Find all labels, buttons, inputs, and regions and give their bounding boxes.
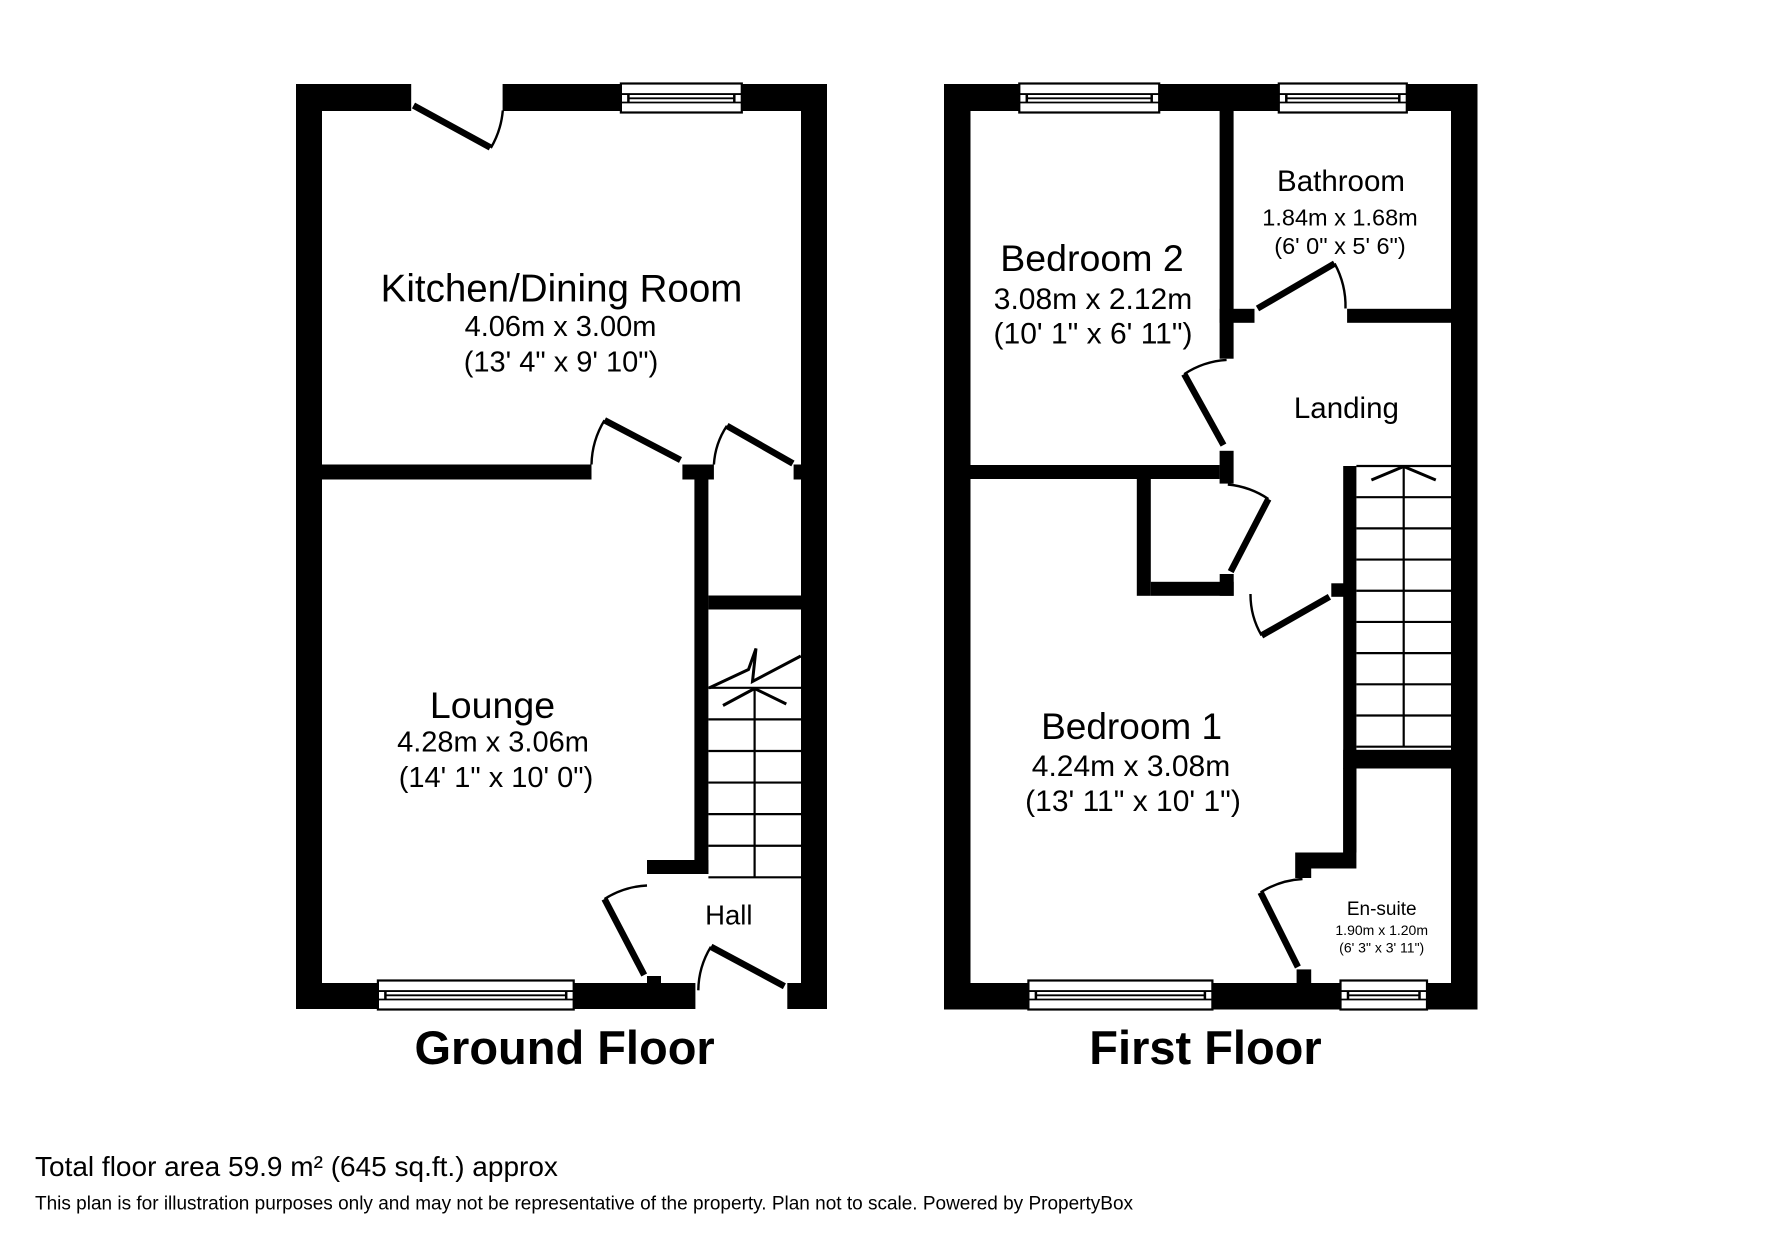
svg-text:4.28m x 3.06m: 4.28m x 3.06m	[397, 726, 589, 758]
svg-text:(10' 1" x 6' 11"): (10' 1" x 6' 11")	[994, 318, 1193, 351]
svg-text:First Floor: First Floor	[1089, 1021, 1321, 1074]
svg-text:Bedroom 2: Bedroom 2	[1000, 237, 1183, 279]
svg-text:Hall: Hall	[705, 900, 752, 931]
svg-text:(6' 0" x 5' 6"): (6' 0" x 5' 6")	[1274, 233, 1405, 259]
svg-text:Total floor area 59.9 m² (645: Total floor area 59.9 m² (645 sq.ft.) ap…	[35, 1151, 558, 1182]
svg-text:(6' 3" x 3' 11"): (6' 3" x 3' 11")	[1339, 939, 1424, 955]
svg-text:(13' 11" x 10' 1"): (13' 11" x 10' 1")	[1025, 785, 1241, 818]
svg-text:En-suite: En-suite	[1347, 899, 1417, 920]
svg-text:4.06m x 3.00m: 4.06m x 3.00m	[465, 311, 657, 343]
svg-text:Ground Floor: Ground Floor	[414, 1021, 714, 1074]
svg-text:4.24m x 3.08m: 4.24m x 3.08m	[1032, 750, 1230, 783]
svg-text:Landing: Landing	[1294, 392, 1399, 425]
svg-text:Bedroom 1: Bedroom 1	[1041, 706, 1222, 747]
svg-text:(13' 4" x 9' 10"): (13' 4" x 9' 10")	[464, 347, 658, 379]
svg-text:3.08m x 2.12m: 3.08m x 2.12m	[994, 283, 1192, 316]
svg-text:(14' 1" x 10' 0"): (14' 1" x 10' 0")	[399, 762, 593, 794]
svg-text:Kitchen/Dining Room: Kitchen/Dining Room	[381, 268, 743, 311]
svg-text:This plan is for illustration: This plan is for illustration purposes o…	[35, 1193, 1134, 1214]
svg-text:Bathroom: Bathroom	[1277, 165, 1405, 198]
svg-text:1.84m x 1.68m: 1.84m x 1.68m	[1262, 204, 1417, 230]
svg-text:1.90m x 1.20m: 1.90m x 1.20m	[1335, 922, 1428, 938]
svg-text:Lounge: Lounge	[430, 684, 555, 726]
